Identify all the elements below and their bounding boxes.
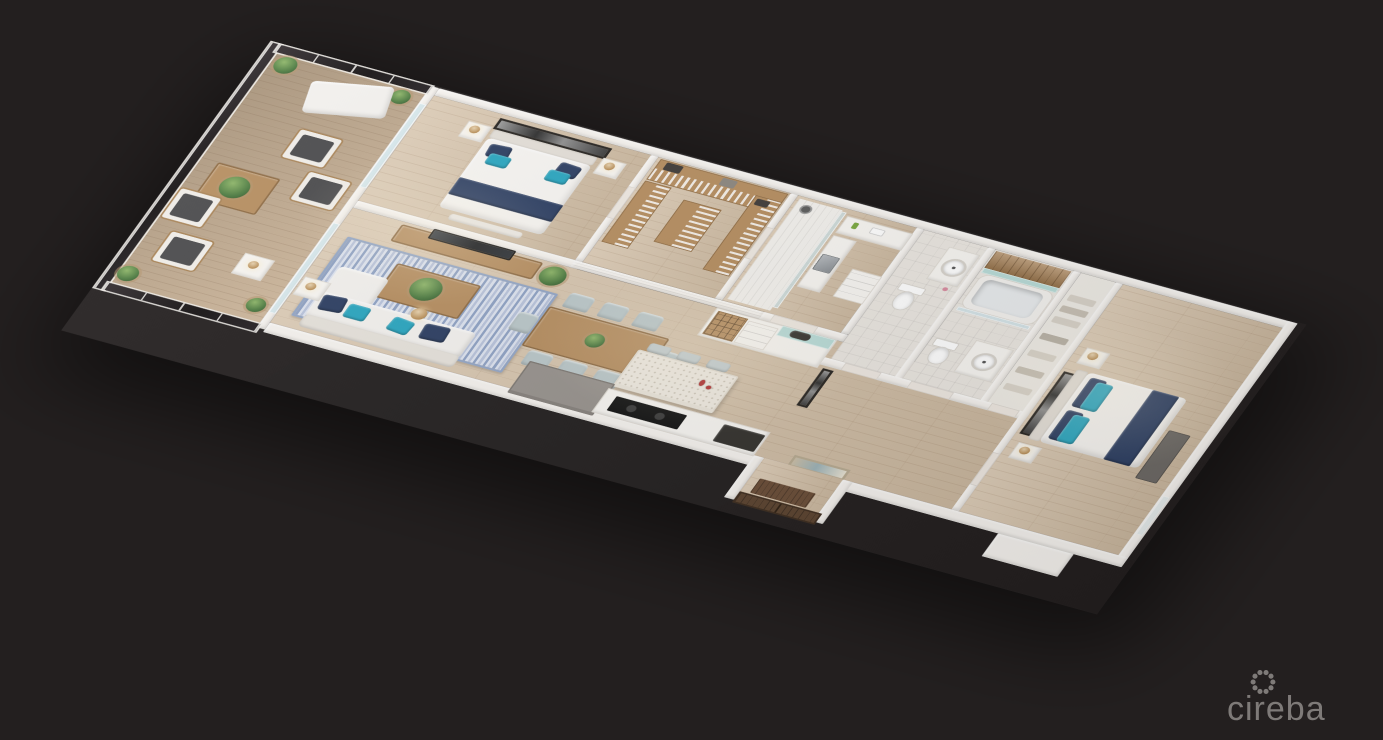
page: { "scene": { "type": "3d-floor-plan-rend…	[0, 0, 1383, 740]
lounge-chair	[301, 81, 395, 120]
cireba-watermark: cireba	[1227, 668, 1349, 726]
cireba-wordmark: cireba	[1227, 692, 1326, 726]
floorplan-3d	[61, 41, 1306, 615]
dark-backdrop	[0, 0, 1383, 740]
